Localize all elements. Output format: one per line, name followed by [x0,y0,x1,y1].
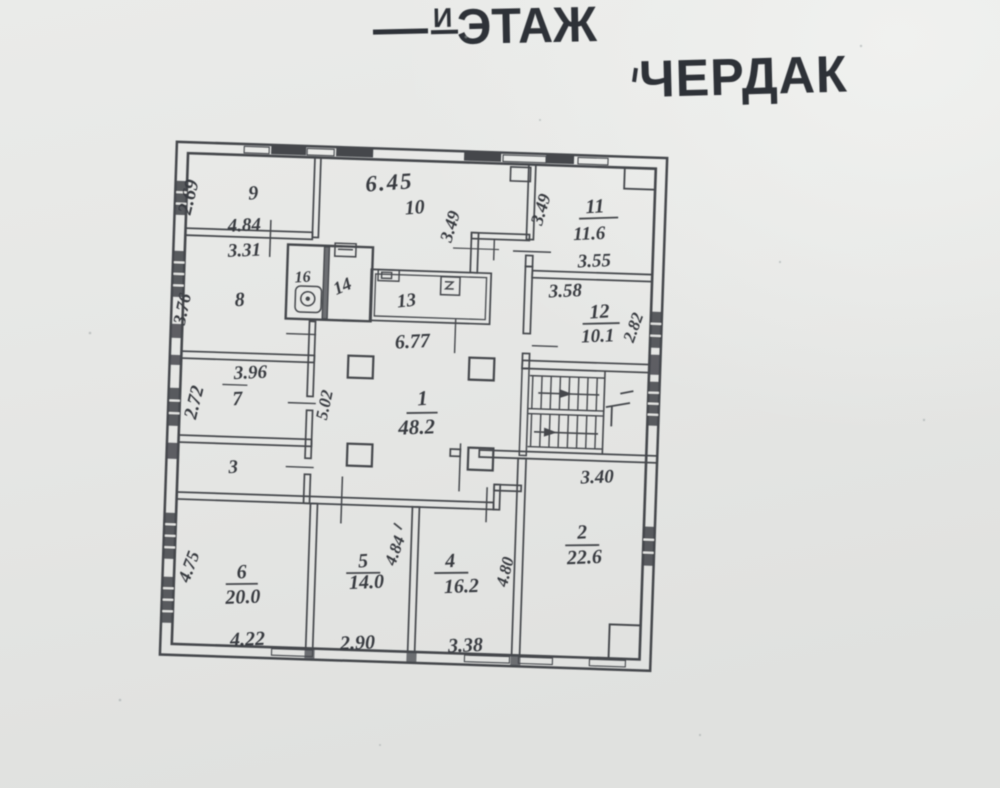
svg-text:11.6: 11.6 [573,223,606,245]
svg-text:3: 3 [227,457,239,479]
svg-text:2: 2 [576,521,588,544]
svg-text:4.84: 4.84 [226,214,261,236]
svg-text:16.2: 16.2 [444,575,480,598]
svg-text:ЧЕРДАК: ЧЕРДАК [638,45,848,108]
svg-text:16: 16 [294,269,311,287]
svg-text:22.6: 22.6 [566,546,603,569]
svg-text:10.1: 10.1 [581,325,615,347]
svg-text:6.45: 6.45 [364,168,414,196]
svg-text:ЭТАЖ: ЭТАЖ [456,0,598,55]
svg-text:6: 6 [236,561,247,584]
svg-text:14.0: 14.0 [349,571,385,594]
svg-text:6.77: 6.77 [394,330,431,354]
svg-text:12: 12 [589,300,610,323]
svg-text:3.38: 3.38 [447,634,484,657]
svg-text:3.58: 3.58 [547,280,582,302]
svg-text:9: 9 [248,182,259,205]
svg-text:20.0: 20.0 [224,586,261,609]
svg-text:10: 10 [404,196,426,219]
svg-text:11: 11 [585,195,605,218]
svg-text:48.2: 48.2 [397,414,436,439]
svg-text:3.55: 3.55 [576,250,611,272]
svg-text:4: 4 [444,550,456,573]
svg-text:13: 13 [396,290,417,313]
svg-text:8: 8 [234,289,245,312]
svg-text:4.22: 4.22 [229,628,266,651]
svg-text:3.31: 3.31 [226,240,261,262]
svg-text:1: 1 [417,386,429,411]
svg-text:2.90: 2.90 [339,631,376,654]
svg-text:5: 5 [358,550,369,573]
svg-text:3.40: 3.40 [579,466,614,488]
svg-text:И: И [433,3,453,33]
svg-text:3.96: 3.96 [232,362,267,384]
